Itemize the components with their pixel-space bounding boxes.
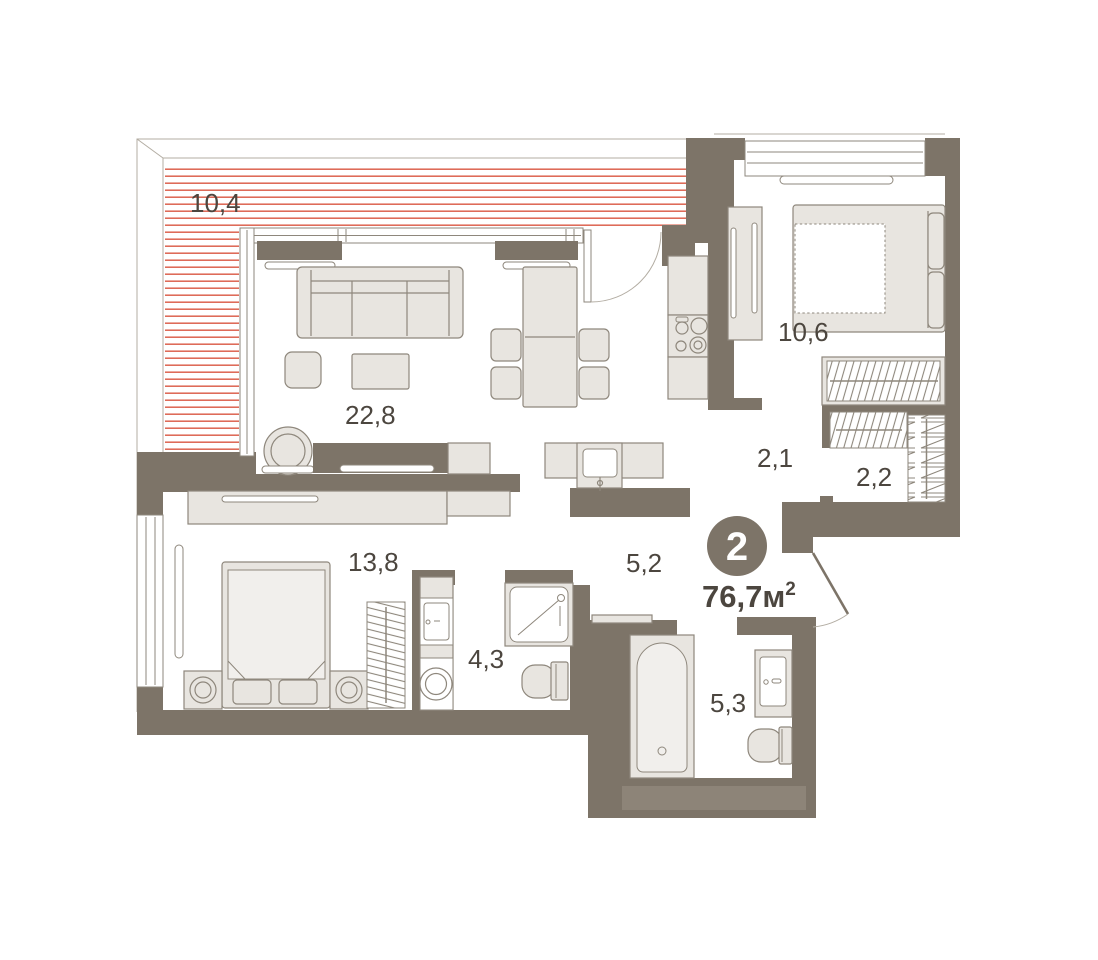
coffee-table bbox=[352, 354, 409, 389]
wall-left-upper bbox=[137, 452, 163, 515]
bed-2 bbox=[222, 562, 330, 708]
ottoman bbox=[285, 352, 321, 388]
wardrobe-tall bbox=[728, 207, 762, 340]
dining-chair bbox=[579, 367, 609, 399]
room-label-bathroom: 5,3 bbox=[710, 688, 746, 718]
window-bedroom bbox=[745, 141, 925, 176]
wardrobe-b bbox=[830, 412, 907, 448]
wall-hall-bottom bbox=[788, 502, 960, 537]
bath-ledge bbox=[592, 615, 652, 623]
bed-blanket bbox=[795, 224, 885, 313]
bathtub bbox=[630, 635, 694, 778]
room-label-bedroom: 10,6 bbox=[778, 317, 829, 347]
wall-bottom-band bbox=[137, 710, 592, 735]
pillow bbox=[233, 680, 271, 704]
floor-plan: 10,4 22,8 10,6 2,1 2,2 5,2 13,8 4,3 5,3 … bbox=[0, 0, 1098, 960]
washing-machine bbox=[420, 658, 453, 710]
entrance bbox=[813, 553, 848, 627]
terrace-corner-miter bbox=[137, 139, 163, 158]
kitchen-sink-counter bbox=[545, 443, 663, 491]
pillow bbox=[928, 213, 944, 269]
sofa bbox=[297, 267, 463, 338]
dining-chair bbox=[491, 367, 521, 399]
nightstand-right bbox=[330, 671, 368, 709]
door-leaf-balcony bbox=[584, 230, 591, 302]
total-area: 76,7м2 bbox=[702, 579, 796, 614]
kitchen-counter bbox=[668, 256, 708, 399]
nightstand-left bbox=[184, 671, 222, 709]
radiator-bedroom bbox=[780, 176, 893, 184]
wall-below-kitchen bbox=[570, 488, 690, 517]
wall-bath-top-b bbox=[737, 617, 792, 635]
room-label-living-kitchen: 22,8 bbox=[345, 400, 396, 430]
wall-entry-notch bbox=[820, 496, 833, 503]
bed2-blanket bbox=[228, 570, 325, 679]
living-kitchen bbox=[257, 230, 708, 491]
room-label-corridor: 5,2 bbox=[626, 548, 662, 578]
wall-living-bottom bbox=[140, 474, 520, 492]
wall-shaft bbox=[588, 622, 632, 800]
door-swing-arc bbox=[591, 232, 661, 302]
wall-wardrobe-left-stub bbox=[822, 410, 830, 448]
wall-left-lower bbox=[137, 687, 163, 713]
dresser-handle bbox=[222, 496, 318, 502]
living-cabinet bbox=[448, 443, 490, 474]
radiator-bedroom2 bbox=[175, 545, 183, 658]
washbasin-53 bbox=[755, 650, 792, 717]
room-label-terrace: 10,4 bbox=[190, 188, 241, 218]
wall-bedroom-top-left bbox=[714, 138, 745, 160]
washbasin-43 bbox=[420, 598, 453, 645]
dining-chair bbox=[491, 329, 521, 361]
toilet-53 bbox=[748, 727, 792, 764]
bedroom bbox=[728, 176, 945, 405]
wardrobe-shelves bbox=[908, 415, 945, 502]
wardrobe-hangers bbox=[822, 357, 945, 405]
wall-console-right bbox=[495, 241, 578, 260]
room-label-wardrobe: 2,2 bbox=[856, 462, 892, 492]
corridor-cabinet bbox=[447, 491, 510, 516]
entry-door-swing-arc bbox=[813, 614, 848, 627]
wall-bath-right bbox=[792, 617, 816, 782]
room-label-shower-room: 4,3 bbox=[468, 644, 504, 674]
bedroom-2 bbox=[175, 491, 510, 709]
shower-cabin bbox=[505, 583, 573, 646]
wall-bath-bottom-inner bbox=[622, 786, 806, 810]
pillow bbox=[928, 272, 944, 328]
floor-plan-page: 10,4 22,8 10,6 2,1 2,2 5,2 13,8 4,3 5,3 … bbox=[0, 0, 1098, 960]
wardrobe-bedroom2 bbox=[367, 602, 405, 708]
balcony-door bbox=[584, 230, 661, 302]
tv-soundbar bbox=[340, 465, 434, 472]
summary: 2 76,7м2 bbox=[702, 516, 796, 614]
wall-console-left bbox=[257, 241, 342, 260]
pillow bbox=[279, 680, 317, 704]
entry-door-leaf bbox=[813, 553, 848, 614]
toilet-43 bbox=[522, 662, 568, 700]
wall-entry-block bbox=[782, 502, 813, 553]
lounge-chair bbox=[262, 427, 314, 475]
bed-double bbox=[793, 205, 945, 332]
window-bedroom2 bbox=[137, 515, 163, 687]
room-label-bedroom-2: 13,8 bbox=[348, 547, 399, 577]
wall-right-outer bbox=[945, 138, 960, 537]
dining-chair bbox=[579, 329, 609, 361]
room-label-hallway: 2,1 bbox=[757, 443, 793, 473]
wall-under-wardrobe bbox=[734, 398, 762, 410]
rooms-count: 2 bbox=[726, 525, 748, 569]
